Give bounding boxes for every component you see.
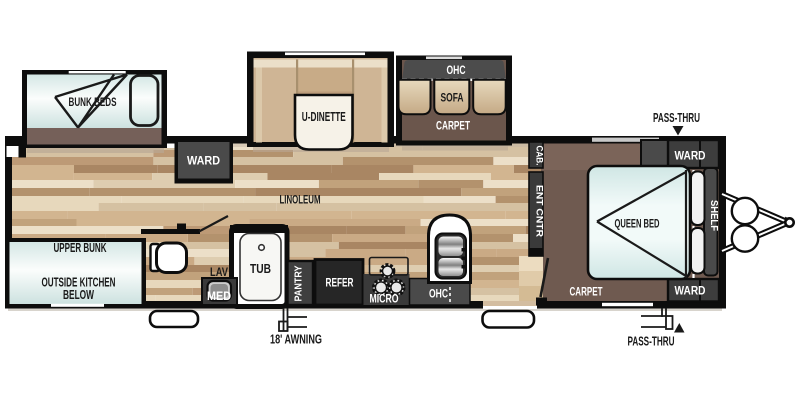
svg-text:CARPET: CARPET <box>436 121 470 133</box>
svg-text:WARD: WARD <box>187 154 220 168</box>
svg-text:LINOLEUM: LINOLEUM <box>280 193 321 207</box>
svg-text:BUNK BEDS: BUNK BEDS <box>69 97 117 109</box>
svg-text:PASS-THRU: PASS-THRU <box>653 111 700 125</box>
svg-text:UPPER BUNK: UPPER BUNK <box>54 241 107 255</box>
svg-text:MICRO: MICRO <box>370 292 399 306</box>
svg-text:WARD: WARD <box>675 284 706 298</box>
svg-text:REFER: REFER <box>326 276 354 290</box>
svg-text:ENT CNTR: ENT CNTR <box>534 185 545 237</box>
svg-text:U-DINETTE: U-DINETTE <box>302 110 346 124</box>
svg-text:MED: MED <box>207 291 231 303</box>
svg-text:OHC: OHC <box>447 65 466 77</box>
svg-text:PASS-THRU: PASS-THRU <box>628 335 675 349</box>
svg-text:BELOW: BELOW <box>63 288 94 302</box>
svg-text:SHELF: SHELF <box>708 200 720 232</box>
svg-text:QUEEN BED: QUEEN BED <box>615 217 660 231</box>
svg-text:CAB.: CAB. <box>534 146 545 166</box>
svg-text:CARPET: CARPET <box>570 285 603 299</box>
svg-text:TUB: TUB <box>250 262 271 276</box>
svg-text:18' AWNING: 18' AWNING <box>270 333 322 347</box>
svg-text:SOFA: SOFA <box>441 93 464 105</box>
svg-text:OHC: OHC <box>429 287 448 301</box>
svg-text:PANTRY: PANTRY <box>293 266 305 302</box>
svg-text:WARD: WARD <box>675 149 706 163</box>
